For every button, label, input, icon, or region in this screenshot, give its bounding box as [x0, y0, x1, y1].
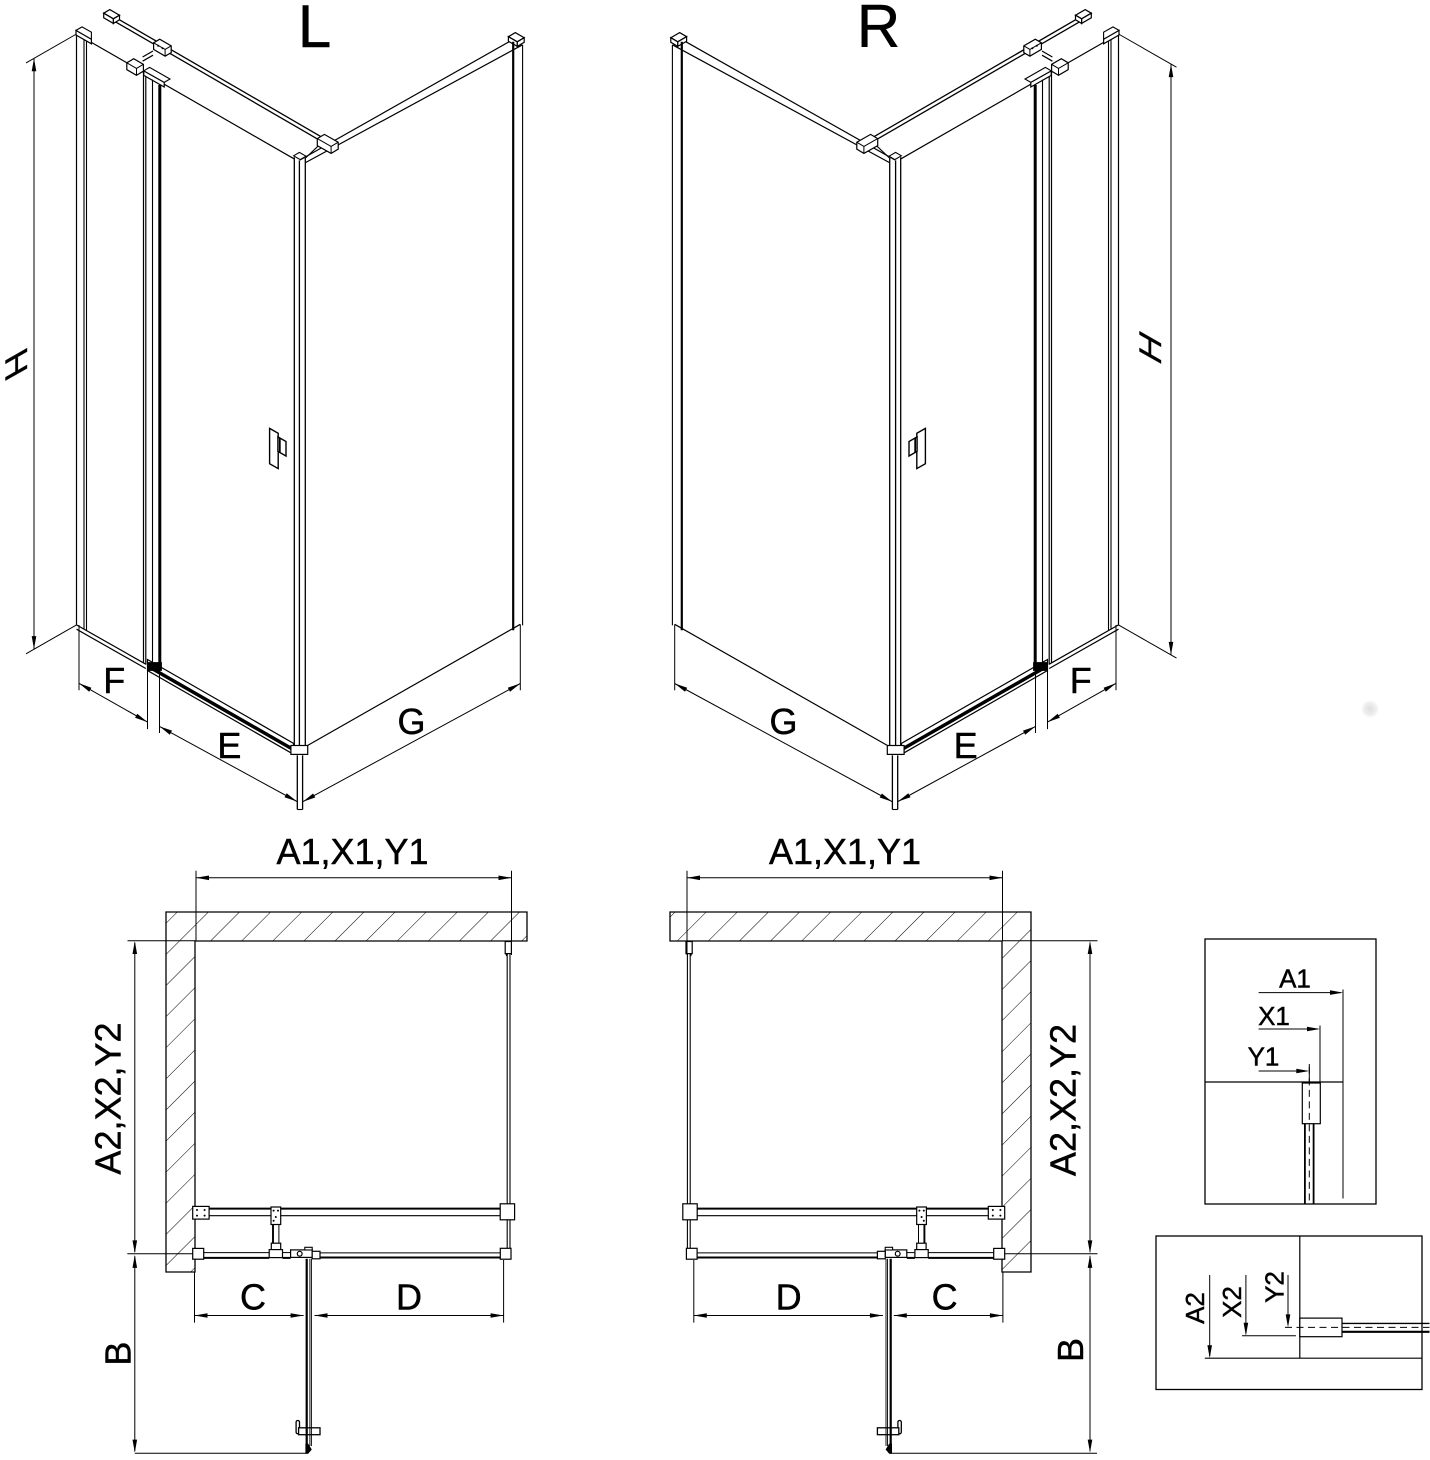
svg-text:E: E	[217, 725, 241, 766]
svg-text:G: G	[769, 701, 797, 742]
svg-text:L: L	[298, 0, 331, 60]
svg-text:A1,X1,Y1: A1,X1,Y1	[276, 831, 428, 872]
svg-text:F: F	[103, 660, 125, 701]
svg-text:D: D	[396, 1277, 422, 1318]
svg-text:A2,X2,Y2: A2,X2,Y2	[1043, 1024, 1084, 1176]
svg-text:C: C	[240, 1277, 266, 1318]
svg-text:X1: X1	[1258, 1001, 1290, 1031]
svg-text:E: E	[954, 725, 978, 766]
svg-text:Y2: Y2	[1260, 1271, 1290, 1303]
svg-text:D: D	[776, 1277, 802, 1318]
svg-text:A1,X1,Y1: A1,X1,Y1	[769, 831, 921, 872]
svg-text:X2: X2	[1217, 1286, 1247, 1318]
svg-text:A2,X2,Y2: A2,X2,Y2	[88, 1022, 129, 1174]
svg-text:G: G	[397, 701, 425, 742]
svg-text:A1: A1	[1279, 964, 1311, 994]
svg-text:C: C	[932, 1277, 958, 1318]
svg-text:A2: A2	[1180, 1292, 1210, 1324]
svg-text:F: F	[1070, 660, 1092, 701]
svg-text:B: B	[1050, 1338, 1091, 1362]
svg-text:B: B	[97, 1342, 138, 1366]
svg-text:Y1: Y1	[1248, 1042, 1280, 1072]
svg-text:R: R	[857, 0, 900, 60]
